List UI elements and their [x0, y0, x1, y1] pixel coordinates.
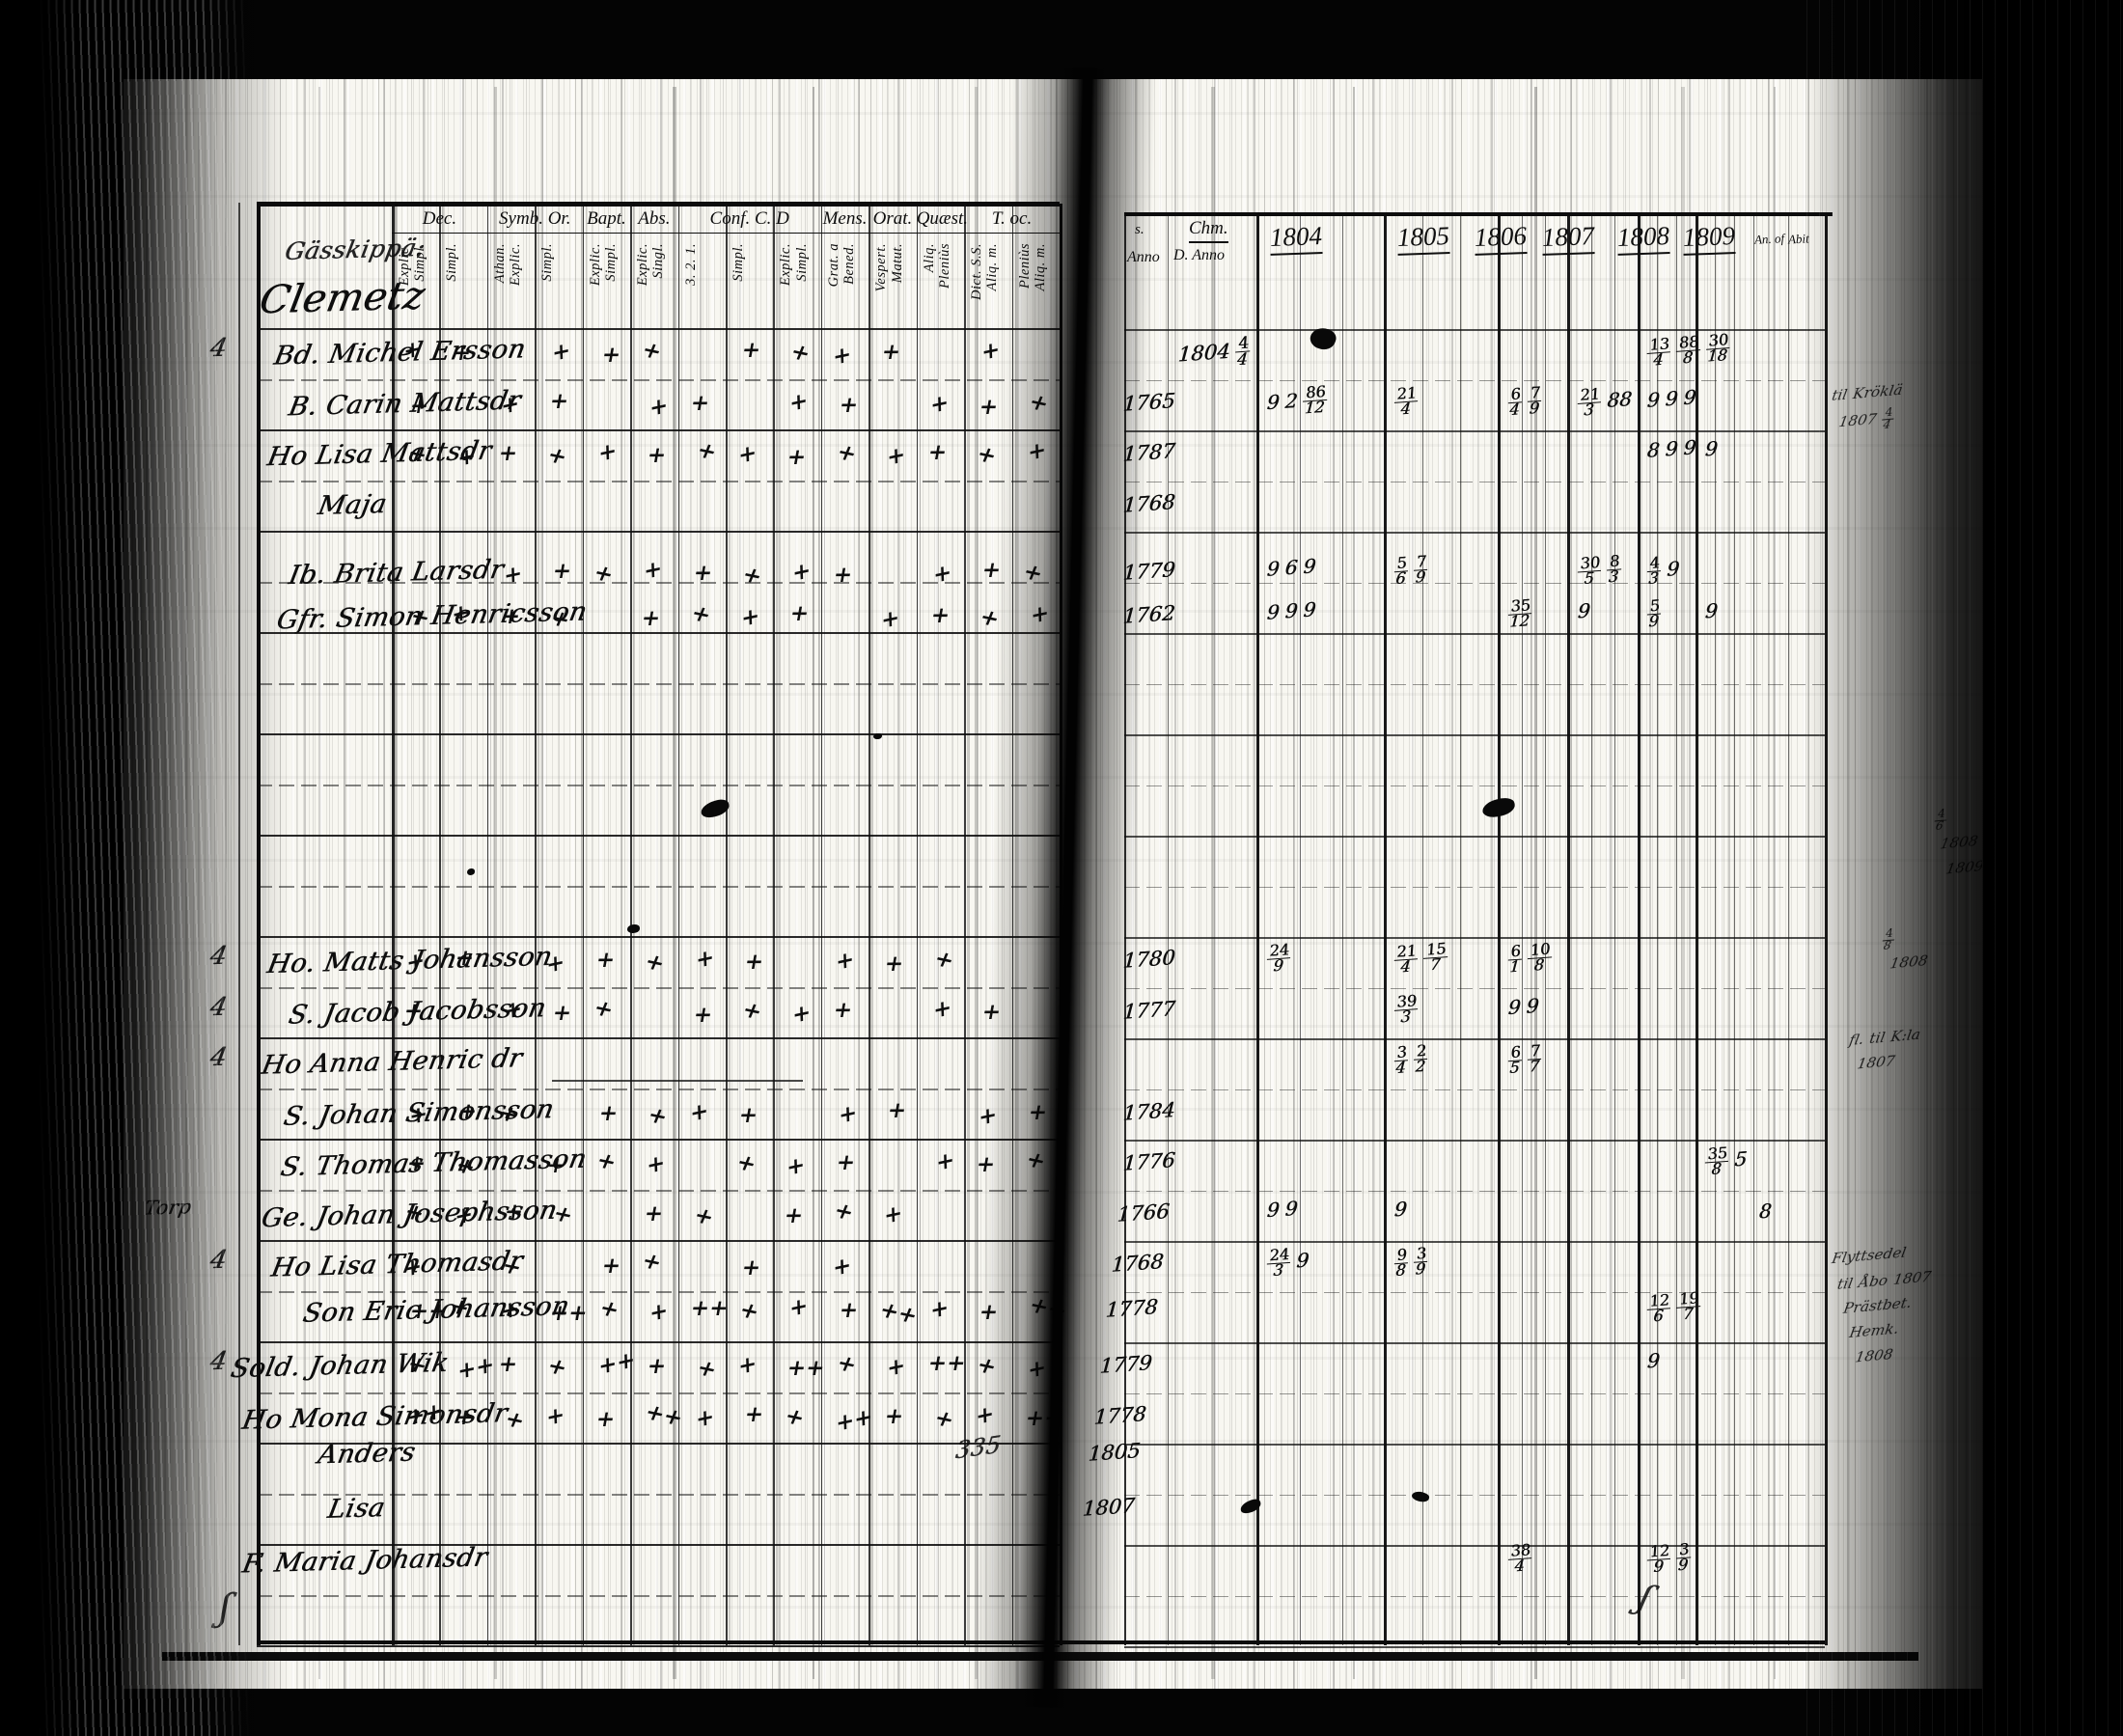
mark-column-line: [583, 204, 585, 1645]
communion-date-entry: 1348883018: [1643, 333, 1734, 369]
dark-scan-streak: [813, 87, 814, 1679]
column-subheader-rotated: Explic.Singl.: [636, 243, 666, 328]
year-column-line: [1614, 214, 1615, 1645]
date-fraction: 157: [1422, 942, 1448, 973]
mark-number: 9: [1303, 597, 1317, 621]
communion-date-entry: 99: [1263, 1196, 1301, 1222]
reading-mark: +: [887, 441, 906, 471]
communion-date-entry: 9: [1643, 1348, 1664, 1372]
reading-mark: +: [741, 601, 760, 631]
mark-number: 9: [1266, 1198, 1281, 1222]
row-line-right: [1124, 633, 1825, 635]
mark-number: 9: [1577, 598, 1591, 622]
advenit-entry: 8: [1758, 1199, 1773, 1223]
communion-date-entry: 3512: [1504, 597, 1536, 629]
subheader-word: Explic.: [779, 243, 793, 286]
mark-number: 9: [1704, 598, 1719, 622]
reading-mark: +: [689, 1096, 708, 1126]
year-column-line: [1676, 214, 1677, 1645]
year-header: 1806: [1474, 221, 1527, 256]
row-line-right: [1124, 734, 1825, 736]
communion-date-entry: 384: [1504, 1543, 1536, 1575]
reading-mark: +: [695, 1402, 714, 1432]
row-line-right: [1124, 1495, 1825, 1497]
year-column-line: [1657, 214, 1658, 1645]
column-subheader-rotated: Vespert.Matut.: [874, 243, 904, 328]
communion-header: Chm.: [1189, 218, 1228, 243]
date-fraction: 79: [1413, 555, 1428, 586]
column-subheader-rotated: Explic.Simpl.: [779, 243, 809, 328]
mark-number: 9: [1393, 1197, 1408, 1221]
mark-number: 9: [1646, 1349, 1661, 1373]
mark-number: 8: [1646, 438, 1661, 462]
communion-date-entry: 5679: [1391, 555, 1432, 588]
reading-mark: +: [738, 439, 758, 469]
reading-mark: +: [597, 437, 617, 467]
reading-mark: +: [501, 389, 520, 419]
communion-date-entry: 214: [1391, 385, 1422, 417]
year-column-line: [1256, 214, 1259, 1645]
year-column-line: [1696, 214, 1698, 1645]
mark-column-line: [821, 204, 823, 1645]
row-line-right: [1124, 1292, 1825, 1294]
row-line: [257, 1645, 1060, 1647]
person-name: B. Carin Mattsdr: [286, 385, 523, 422]
column-subheader-rotated: Simpl.: [540, 243, 555, 328]
year-column-line: [1638, 214, 1640, 1645]
date-fraction: 59: [1646, 598, 1662, 629]
row-line-right: [1124, 1596, 1825, 1598]
communion-date-entry: 9839: [1391, 1247, 1432, 1280]
subheader-word: Aliq. m.: [985, 243, 1000, 291]
mark-column-line: [487, 204, 489, 1645]
row-line: [257, 531, 1060, 533]
reading-mark: +: [649, 1296, 669, 1326]
reading-mark: +: [644, 555, 663, 585]
row-line: [257, 987, 1060, 989]
mark-number: 9: [1284, 1196, 1299, 1220]
reading-mark: +: [649, 391, 669, 421]
communion-date-entry: 3422: [1391, 1044, 1432, 1077]
mark-column-line: [917, 204, 919, 1645]
book-right-edge: [1806, 0, 2123, 1736]
subheader-word: Aliq.: [923, 243, 937, 272]
row-line: [257, 785, 1060, 786]
row-line: [257, 886, 1060, 888]
date-fraction: 249: [1266, 943, 1292, 974]
row-line: [257, 835, 1060, 837]
year-column-line: [1498, 214, 1501, 1645]
reading-mark: +: [691, 560, 714, 586]
column-subheader-rotated: Explic.Simpl.: [589, 243, 619, 328]
year-column-line: [1788, 214, 1789, 1645]
subheader-word: Simpl.: [413, 243, 427, 282]
row-line-right: [1124, 380, 1825, 382]
reading-mark: +: [836, 946, 855, 976]
date-fraction: 43: [1646, 556, 1662, 587]
d-anno-header: D. Anno: [1173, 247, 1225, 264]
year-column-line: [1168, 214, 1169, 1645]
mark-number: 9: [1266, 390, 1281, 414]
subheader-word: Simpl.: [795, 243, 810, 282]
column-group-header: Conf. C. D: [678, 208, 821, 234]
communion-date-entry: 999: [1643, 385, 1699, 412]
date-fraction: 393: [1393, 994, 1420, 1025]
date-fraction: 129: [1646, 1544, 1672, 1575]
dark-scan-streak: [1774, 87, 1776, 1679]
scanned-parish-register: Gässkippä: Clemetz Dec.Symb. Or.Bapt.Abs…: [0, 0, 2123, 1736]
subheader-word: Singl.: [651, 243, 666, 278]
date-fraction: 214: [1393, 386, 1420, 417]
date-fraction: 39: [1413, 1247, 1428, 1278]
date-fraction: 305: [1577, 556, 1603, 587]
reading-mark: +: [935, 1146, 954, 1176]
date-fraction: 44: [1234, 335, 1251, 367]
year-column-line: [1715, 214, 1716, 1645]
row-line: [257, 1341, 1060, 1343]
row-line-right: [1124, 785, 1825, 787]
dark-scan-streak: [494, 87, 497, 1679]
mark-number: 9: [1704, 437, 1719, 461]
communion-date-entry: 439: [1643, 555, 1683, 587]
reading-mark: +: [884, 1199, 903, 1228]
year-header: 1809: [1682, 221, 1735, 256]
reading-mark: ++: [688, 1295, 730, 1321]
communion-date-entry: 21388: [1574, 384, 1636, 418]
row-line: [257, 1037, 1060, 1039]
date-fraction: 213: [1577, 387, 1603, 418]
communion-date-entry: 6577: [1504, 1044, 1546, 1077]
right-table-top-rule: [1124, 212, 1833, 216]
column-subheader-rotated: Aliq.Pleniùs: [923, 243, 952, 328]
date-fraction: 358: [1704, 1146, 1730, 1177]
mark-number: 6: [1284, 556, 1299, 580]
column-subheader-rotated: Simpl.: [731, 243, 746, 328]
row-line: [257, 1139, 1060, 1141]
mark-number: 1804: [1177, 339, 1231, 366]
name-tail-line: [552, 1080, 803, 1082]
communion-date-entry: 9: [1701, 436, 1722, 460]
row-line-right: [1124, 937, 1825, 939]
mark-number: 9: [1646, 387, 1661, 411]
year-header: 1808: [1616, 221, 1669, 256]
reading-mark: +: [929, 388, 949, 418]
subheader-word: Simpl.: [604, 243, 619, 282]
reading-mark: +: [789, 1291, 809, 1321]
subheader-word: Simpl.: [731, 243, 746, 282]
reading-mark: +: [887, 1352, 906, 1382]
mark-number: 9: [1284, 598, 1299, 622]
subheader-word: Explic.: [509, 243, 523, 286]
person-name: Maja: [316, 489, 389, 521]
mark-number: 88: [1607, 386, 1633, 411]
subheader-word: Simpl.: [445, 243, 459, 282]
row-line: [257, 481, 1060, 482]
year-column-line: [1300, 214, 1301, 1645]
row-line: [257, 1240, 1060, 1242]
date-fraction: 214: [1393, 944, 1420, 975]
date-fraction: 197: [1675, 1291, 1701, 1322]
date-fraction: 61: [1507, 945, 1523, 976]
mark-column-line: [773, 204, 775, 1645]
communion-date-entry: 969: [1263, 554, 1319, 581]
year-column-line: [1753, 214, 1754, 1645]
mark-number: 5: [1734, 1146, 1749, 1171]
reading-mark: +: [457, 442, 477, 472]
date-fraction: 3512: [1507, 598, 1533, 629]
reading-mark: +: [786, 1151, 806, 1181]
reading-mark: +: [929, 1293, 949, 1323]
row-line-right: [1124, 1089, 1825, 1091]
date-fraction: 126: [1646, 1293, 1672, 1324]
communion-date-entry: 999: [1263, 597, 1319, 624]
reading-mark: +: [932, 559, 951, 589]
reading-mark: +: [792, 557, 812, 587]
communion-date-entry: 9: [1391, 1197, 1411, 1221]
subheader-word: Explic.: [636, 243, 650, 286]
row-line-right: [1124, 836, 1825, 838]
reading-mark: ++: [548, 1300, 590, 1326]
reading-mark: +: [789, 386, 809, 416]
mark-number: 9: [1266, 599, 1281, 623]
year-column-line: [1422, 214, 1423, 1645]
book-left-edge: [0, 0, 289, 1736]
row-line: [257, 1392, 1060, 1394]
year-column-line: [1545, 214, 1546, 1645]
dark-scan-streak: [1353, 87, 1355, 1679]
person-name: Anders: [316, 1438, 418, 1471]
year-column-line: [1384, 214, 1387, 1645]
reading-mark: +: [881, 603, 900, 633]
reading-mark: +: [504, 994, 523, 1024]
reading-mark: +: [455, 1199, 474, 1229]
reading-mark: +: [932, 993, 951, 1023]
subheader-word: Bened.: [842, 243, 857, 285]
reading-mark: +: [452, 597, 471, 627]
row-line: [257, 683, 1060, 685]
communion-date-entry: 214157: [1391, 942, 1451, 976]
reading-mark: +: [552, 337, 571, 367]
dark-scan-streak: [318, 87, 320, 1679]
column-subheader-rotated: 3. 2. 1.: [684, 243, 699, 328]
row-line-right: [1124, 684, 1825, 686]
row-line-right: [1124, 1191, 1825, 1193]
year-column-line: [1460, 214, 1461, 1645]
reading-mark: +: [501, 1294, 520, 1324]
date-fraction: 888: [1675, 335, 1701, 366]
row-line-right: [1124, 988, 1825, 990]
reading-mark: +: [403, 1253, 423, 1282]
reading-mark: +: [695, 944, 714, 974]
column-subheader-rotated: Athan.Explic.: [493, 243, 523, 328]
year-column-line: [1522, 214, 1523, 1645]
year-header: 1805: [1396, 221, 1449, 256]
column-group-header: Orat.: [868, 208, 916, 234]
person-name: Lisa: [325, 1493, 388, 1525]
date-fraction: 64: [1507, 387, 1523, 418]
row-line-right: [1124, 1646, 1825, 1648]
row-line-right: [1124, 1140, 1825, 1142]
column-group-header: Bapt.: [583, 208, 630, 234]
row-line: [257, 1088, 1060, 1090]
row-line: [257, 429, 1060, 431]
reading-mark: ++: [408, 1298, 450, 1324]
column-group-header: Symb. Or.: [487, 208, 583, 234]
date-fraction: 8612: [1302, 384, 1328, 415]
reading-mark: +: [409, 1099, 428, 1129]
reading-mark: +: [833, 1252, 852, 1281]
date-fraction: 98: [1393, 1248, 1409, 1279]
reading-mark: +: [691, 1002, 714, 1028]
row-line: [257, 1291, 1060, 1293]
birth-year: 1776: [1122, 1148, 1176, 1175]
subheader-word: Matut.: [891, 243, 905, 283]
communion-date-entry: 30583: [1574, 554, 1625, 587]
row-line: [257, 379, 1060, 381]
row-line: [257, 733, 1060, 735]
communion-date-entry: 12939: [1643, 1542, 1695, 1575]
reading-mark: +: [403, 335, 423, 365]
year-column-line: [1734, 214, 1735, 1645]
mark-number: 9: [1665, 386, 1679, 410]
row-line-right: [1124, 1545, 1825, 1547]
reading-mark: ++: [786, 1355, 827, 1381]
date-fraction: 3018: [1705, 333, 1731, 364]
mark-number: 9: [1303, 554, 1317, 578]
mark-number: 9: [1665, 437, 1679, 461]
row-line-right: [1124, 583, 1825, 585]
communion-date-entry: 61108: [1504, 942, 1556, 975]
advenit-header: An. of: [1754, 231, 1785, 248]
reading-mark: +: [546, 949, 565, 978]
row-line-right: [1124, 1241, 1825, 1243]
year-header: 1804: [1269, 221, 1322, 256]
date-fraction: 384: [1507, 1543, 1533, 1574]
communion-date-entry: 899: [1643, 435, 1699, 462]
reading-mark: +: [647, 1149, 666, 1179]
communion-date-entry: 2439: [1263, 1246, 1313, 1279]
date-fraction: 65: [1507, 1045, 1523, 1076]
row-line-right: [1124, 1038, 1825, 1040]
communion-date-entry: 928612: [1263, 384, 1331, 418]
year-header: 1807: [1541, 221, 1594, 256]
row-line: [257, 1595, 1060, 1597]
subheader-word: 3. 2. 1.: [684, 243, 699, 286]
subheader-word: Grat. a: [827, 243, 841, 287]
mark-number: 9: [1526, 993, 1540, 1017]
communion-date-entry: 3585: [1701, 1144, 1751, 1177]
date-fraction: 34: [1393, 1045, 1409, 1076]
mark-column-line: [726, 204, 728, 1645]
row-line-right: [1124, 532, 1825, 534]
year-column-line: [1591, 214, 1592, 1645]
reading-mark: +: [504, 560, 523, 590]
row-line-right: [1124, 887, 1825, 889]
mark-number: 9: [1296, 1248, 1310, 1272]
column-subheader-rotated: Grat. aBened.: [827, 243, 857, 328]
subheader-word: Explic.: [589, 243, 603, 286]
row-line: [257, 328, 1060, 330]
row-line-right: [1124, 1444, 1825, 1446]
reading-mark: ++: [925, 1350, 967, 1376]
subheader-word: Pleniùs: [938, 243, 952, 289]
communion-date-entry: 249: [1263, 943, 1295, 975]
date-fraction: 83: [1606, 554, 1621, 585]
reading-mark: +: [738, 1350, 758, 1380]
row-line-right: [1124, 1393, 1825, 1395]
mark-column-line: [535, 204, 537, 1645]
reading-mark: +: [688, 390, 711, 416]
date-fraction: 243: [1266, 1248, 1292, 1279]
dark-scan-streak: [1681, 87, 1685, 1679]
communion-date-entry: 9: [1574, 598, 1594, 622]
date-fraction: 134: [1646, 337, 1672, 368]
mark-column-line: [964, 204, 966, 1645]
date-fraction: 22: [1413, 1044, 1428, 1075]
left-table-top-rule: [257, 202, 1060, 207]
subheader-word: Simpl.: [540, 243, 555, 282]
mark-number: 9: [1666, 557, 1680, 581]
dark-scan-streak: [1211, 87, 1215, 1679]
dark-scan-streak: [1534, 87, 1537, 1679]
subheader-word: Explic.: [398, 243, 412, 286]
column-group-header: Mens.: [821, 208, 868, 234]
column-subheader-rotated: Explic.Simpl.: [398, 243, 427, 328]
column-group-header: Quæst.: [917, 208, 964, 234]
mark-number: 9: [1507, 995, 1522, 1019]
communion-date-entry: 126197: [1643, 1290, 1704, 1324]
row-line-right: [1124, 1342, 1825, 1344]
column-group-header: Dec.: [392, 208, 487, 234]
communion-date-entry: 6479: [1504, 385, 1546, 418]
reading-mark: +: [546, 1400, 565, 1430]
mark-number: 2: [1284, 388, 1299, 412]
year-column-line: [1567, 214, 1570, 1645]
row-line: [257, 1190, 1060, 1192]
communion-date-entry: 393: [1391, 993, 1422, 1025]
reading-mark: +: [792, 998, 812, 1028]
date-fraction: 56: [1393, 556, 1409, 587]
reading-mark: +: [833, 341, 852, 371]
dark-scan-streak: [673, 87, 676, 1679]
date-fraction: 108: [1527, 942, 1553, 973]
row-line: [257, 936, 1060, 938]
communion-date-entry: 59: [1643, 598, 1666, 629]
column-subheader-rotated: Simpl.: [445, 243, 459, 328]
reading-mark: +: [839, 1098, 858, 1128]
mark-number: 9: [1266, 557, 1281, 581]
row-line-right: [1124, 430, 1825, 432]
row-line-right: [1124, 482, 1825, 483]
column-group-header: Abs.: [630, 208, 677, 234]
year-column-line: [1342, 214, 1343, 1645]
reading-mark: +: [981, 336, 1001, 366]
subheader-word: Vespert.: [874, 243, 889, 291]
reading-mark: +: [406, 947, 426, 977]
communion-date-entry: 9: [1701, 598, 1722, 622]
